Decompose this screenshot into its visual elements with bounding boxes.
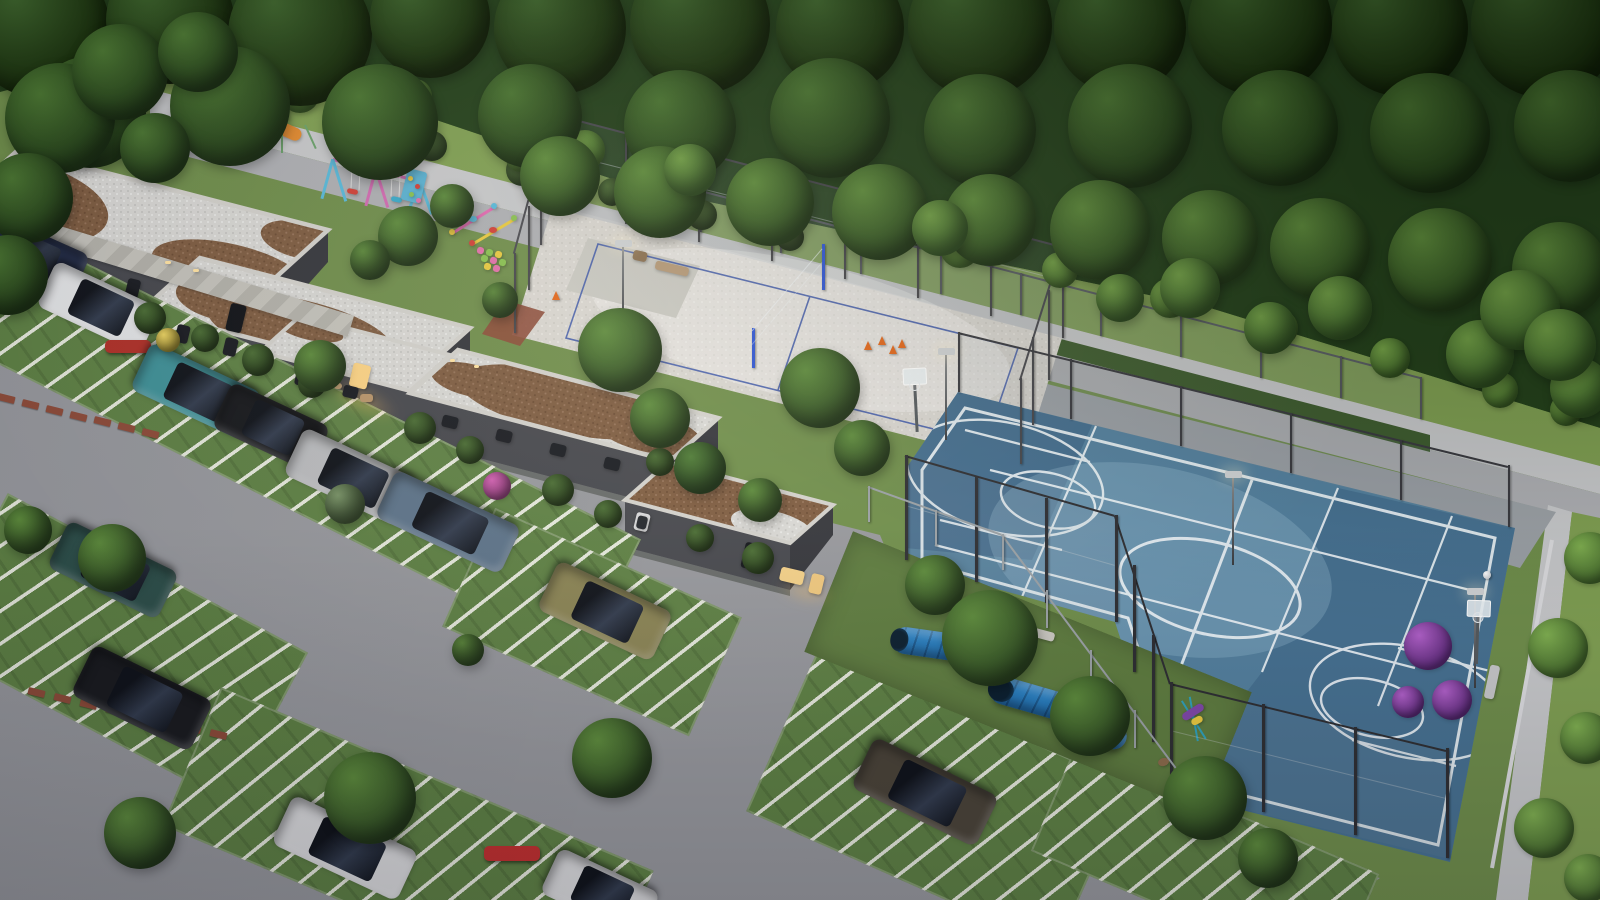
tree	[324, 752, 416, 844]
foundation-shrub	[742, 542, 774, 574]
storage-crate	[632, 250, 648, 263]
traffic-cone	[878, 336, 886, 345]
tree	[350, 240, 390, 280]
dash	[69, 411, 87, 422]
court-fence-rail	[958, 332, 1508, 468]
hopscotch-tile	[480, 254, 488, 262]
tree	[430, 184, 474, 228]
foundation-shrub	[542, 474, 574, 506]
hoop-pole	[913, 384, 918, 432]
lawn-fence-post	[1134, 710, 1136, 748]
volleyball-net	[751, 248, 822, 331]
sand-fence-post	[1048, 290, 1050, 380]
roadside-bush	[1528, 618, 1588, 678]
forest-edge-tree	[1096, 274, 1144, 322]
traffic-cone	[889, 345, 897, 354]
court-fence-post	[1180, 386, 1182, 446]
forest-tree	[726, 158, 814, 246]
volleyball-net-post	[752, 328, 755, 368]
climb-hold	[416, 198, 421, 203]
court-fence-post	[1446, 748, 1449, 858]
lamp-head	[938, 348, 955, 355]
volleyball-net	[752, 262, 823, 345]
roadside-bush	[1564, 854, 1600, 900]
lawn-fence-post	[1002, 534, 1004, 570]
wall-fence-post	[1420, 377, 1422, 419]
motorcycle-red	[105, 340, 151, 353]
eave-light	[165, 261, 171, 264]
court-fence-post	[1070, 359, 1072, 419]
purple-bougainvillea	[1432, 680, 1472, 720]
forest-tree	[322, 64, 438, 180]
lamp-head	[1467, 588, 1484, 595]
yellow-flowers	[156, 328, 180, 352]
dash	[45, 405, 63, 416]
roadside-bush	[1560, 712, 1600, 764]
bench	[1484, 664, 1501, 699]
agave	[325, 484, 365, 524]
hopscotch-tile	[483, 262, 491, 270]
court-fence-post	[975, 477, 978, 582]
tree	[738, 478, 782, 522]
hopscotch-tile	[476, 246, 484, 254]
forest-tree	[1222, 70, 1338, 186]
door-dark	[225, 303, 247, 334]
wall-fence-post	[1020, 273, 1022, 315]
motorcycle-red	[484, 846, 540, 861]
foundation-shrub	[456, 436, 484, 464]
court-fence-rail	[905, 455, 1115, 517]
sand-fence-post	[1020, 378, 1022, 464]
climb-hold	[408, 176, 413, 181]
court-fence-post	[958, 332, 960, 392]
patio-furniture	[360, 394, 373, 402]
magenta-bougainvillea	[483, 472, 511, 500]
tree	[630, 388, 690, 448]
court-fence-post	[1354, 727, 1357, 835]
seesaw-handle	[491, 203, 497, 209]
traffic-cone	[898, 339, 906, 348]
foundation-shrub	[191, 324, 219, 352]
eave-light	[193, 269, 199, 272]
forest-tree	[1050, 180, 1150, 280]
tree	[942, 590, 1038, 686]
window-dark	[441, 414, 459, 429]
seesaw-handle	[449, 229, 455, 235]
outer-bush	[1370, 338, 1410, 378]
window-dark	[495, 428, 513, 443]
forest-tree	[158, 12, 238, 92]
tree	[578, 308, 662, 392]
tree	[78, 524, 146, 592]
court-fence-post	[1400, 440, 1402, 500]
tree	[1050, 676, 1130, 756]
forest-tree	[924, 74, 1036, 186]
swing-leg	[321, 159, 334, 200]
dash	[0, 393, 15, 404]
foundation-shrub	[594, 500, 622, 528]
tree	[4, 506, 52, 554]
climb-hold	[409, 192, 414, 197]
hopscotch-tile	[492, 264, 500, 272]
court-fence-post	[1290, 413, 1292, 473]
seesaw-pivot	[489, 227, 497, 233]
scene-objects	[0, 0, 1600, 900]
forest-tree	[832, 164, 928, 260]
court-light	[1232, 475, 1234, 565]
tree	[294, 340, 346, 392]
palm	[674, 442, 726, 494]
forest-tree	[770, 58, 890, 178]
tree	[1238, 828, 1298, 888]
forest-tree	[1388, 208, 1492, 312]
court-fence-post	[1508, 465, 1510, 527]
basketball-hoop	[900, 367, 929, 432]
forest-tree	[120, 113, 190, 183]
court-fence-post	[1133, 565, 1136, 672]
traffic-cone	[864, 341, 872, 350]
aerial-condominium-render	[0, 0, 1600, 900]
forest-edge-tree	[1160, 258, 1220, 318]
foundation-shrub	[242, 344, 274, 376]
forest-edge-tree	[664, 144, 716, 196]
sand-fence-post	[528, 206, 530, 290]
foundation-shrub	[404, 412, 436, 444]
foundation-shrub	[686, 524, 714, 552]
hoop-pole	[1475, 616, 1479, 664]
bench	[654, 260, 689, 276]
swing-seat	[346, 187, 358, 194]
swing-chain	[399, 174, 401, 198]
forest-tree	[1068, 64, 1192, 188]
forest-edge-tree	[1308, 276, 1372, 340]
lamp-head	[615, 240, 632, 247]
volleyball-net-post	[822, 244, 825, 290]
tree	[1163, 756, 1247, 840]
forest-tree	[1370, 73, 1490, 193]
lawn-fence-post	[868, 486, 870, 522]
tree	[482, 282, 518, 318]
tree	[452, 634, 484, 666]
wall-fence-post	[940, 252, 942, 294]
seesaw-handle	[469, 240, 475, 246]
tree	[834, 420, 890, 476]
court-fence-post	[905, 455, 908, 560]
lawn-fence-post	[1046, 590, 1048, 628]
court-fence-post	[1045, 498, 1048, 603]
basketball-rim	[1472, 612, 1483, 623]
tree	[572, 718, 652, 798]
eave-light	[474, 365, 479, 368]
seesaw-handle	[511, 215, 517, 221]
forest-edge-tree	[1524, 309, 1596, 381]
court-fence-post	[1152, 635, 1155, 742]
wall-fence-post	[1340, 356, 1342, 398]
court-fence-post	[1115, 515, 1118, 622]
court-light	[945, 352, 947, 440]
purple-bougainvillea	[1392, 686, 1424, 718]
tree	[780, 348, 860, 428]
foundation-shrub	[646, 448, 674, 476]
roadside-bush	[1564, 532, 1600, 584]
lawn-fence-post	[935, 510, 937, 546]
eave-light	[450, 359, 455, 362]
forest-edge-tree	[1244, 302, 1296, 354]
forest-tree	[520, 136, 600, 216]
window-dark	[603, 456, 621, 471]
window-dark	[549, 442, 567, 457]
soccer-ball	[1483, 571, 1491, 579]
forest-tree	[72, 24, 168, 120]
roadside-bush	[1514, 798, 1574, 858]
wall-fence-post	[1180, 315, 1182, 357]
basketball-rim	[909, 380, 921, 392]
forest-edge-tree	[912, 200, 968, 256]
lamp-head	[1225, 471, 1242, 478]
purple-bougainvillea	[1404, 622, 1452, 670]
traffic-cone	[552, 291, 560, 300]
basketball-hoop	[1463, 600, 1491, 665]
court-fence-post	[1262, 704, 1265, 812]
tree	[104, 797, 176, 869]
dash	[21, 399, 39, 410]
climb-hold	[415, 184, 420, 189]
play-frame	[304, 125, 317, 150]
